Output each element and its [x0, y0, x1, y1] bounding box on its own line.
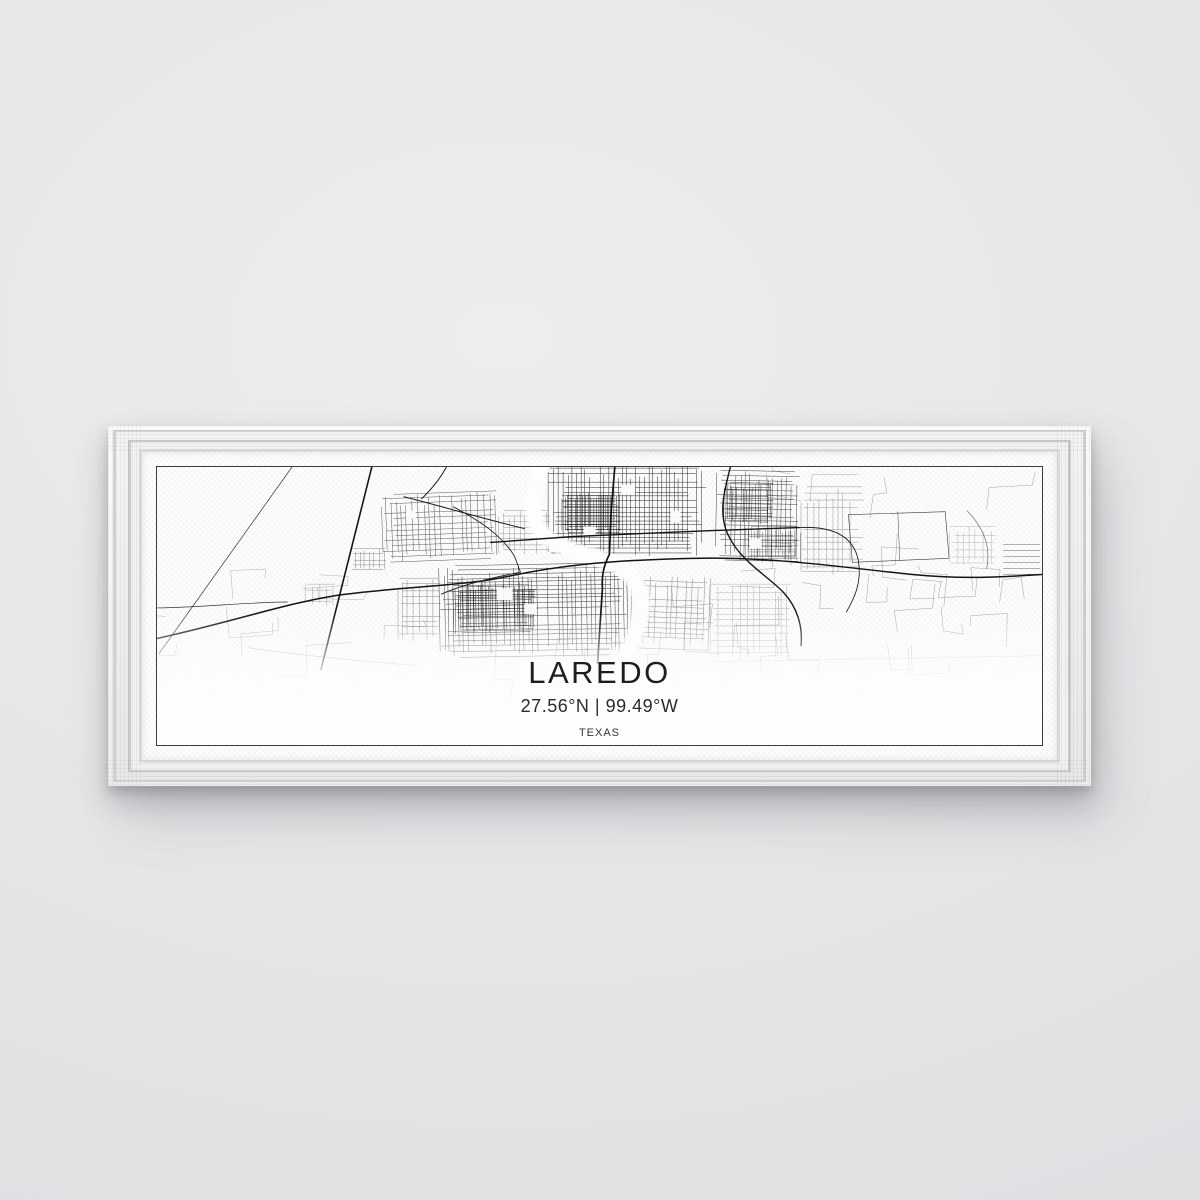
frame-liner: LAREDO 27.56°N | 99.49°W TEXAS — [139, 449, 1060, 763]
frame-molding-band: LAREDO 27.56°N | 99.49°W TEXAS — [116, 432, 1083, 780]
picture-frame: LAREDO 27.56°N | 99.49°W TEXAS — [108, 426, 1091, 786]
frame-molding-groove-1: LAREDO 27.56°N | 99.49°W TEXAS — [113, 430, 1086, 782]
city-coordinates: 27.56°N | 99.49°W — [157, 696, 1042, 717]
frame-molding-inner: LAREDO 27.56°N | 99.49°W TEXAS — [131, 442, 1068, 770]
city-title: LAREDO — [157, 657, 1042, 688]
region-label: TEXAS — [157, 727, 1042, 739]
printed-border: LAREDO 27.56°N | 99.49°W TEXAS — [156, 466, 1043, 746]
wall: LAREDO 27.56°N | 99.49°W TEXAS — [0, 0, 1200, 1200]
frame-molding-groove-2: LAREDO 27.56°N | 99.49°W TEXAS — [128, 440, 1071, 772]
map-caption: LAREDO 27.56°N | 99.49°W TEXAS — [157, 657, 1042, 739]
frame-molding-outer: LAREDO 27.56°N | 99.49°W TEXAS — [108, 426, 1091, 786]
canvas-print: LAREDO 27.56°N | 99.49°W TEXAS — [142, 452, 1057, 760]
